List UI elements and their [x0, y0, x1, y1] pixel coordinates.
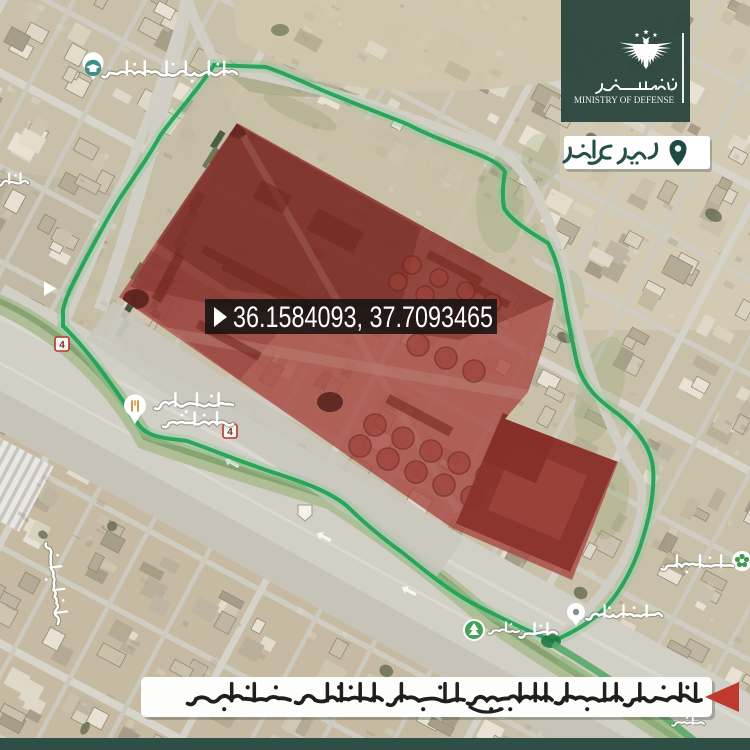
- svg-text:4: 4: [227, 427, 233, 438]
- svg-text:4: 4: [59, 340, 65, 351]
- svg-text:MINISTRY OF DEFENSE: MINISTRY OF DEFENSE: [574, 95, 675, 105]
- svg-text:36.1584093, 37.7093465: 36.1584093, 37.7093465: [233, 301, 493, 334]
